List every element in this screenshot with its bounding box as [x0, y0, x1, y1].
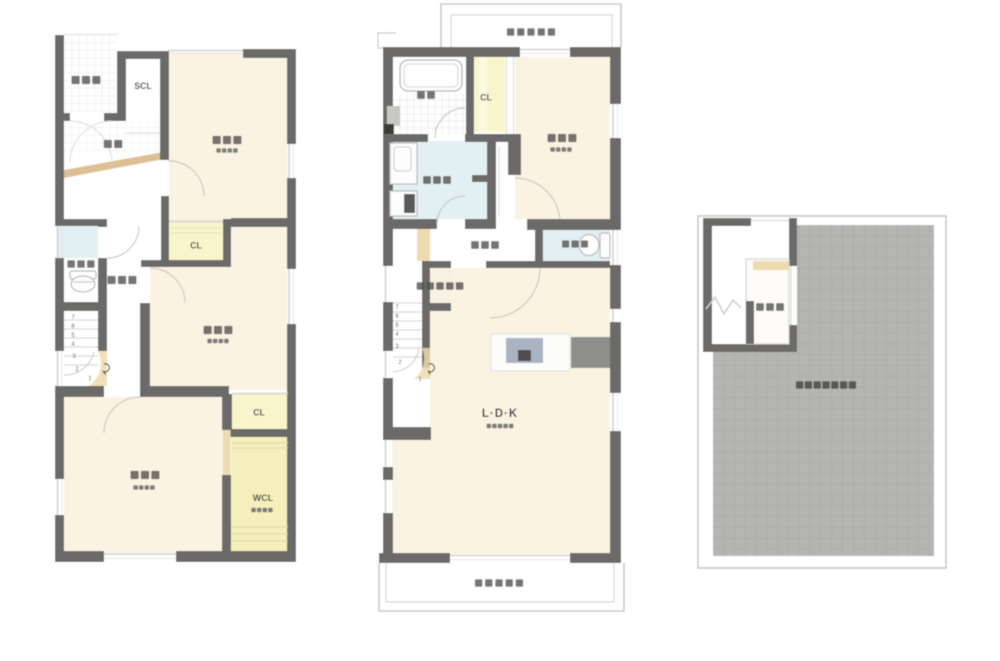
svg-text:L·D·K: L·D·K — [482, 408, 518, 420]
svg-text:CL: CL — [480, 93, 492, 103]
svg-text:WCL: WCL — [253, 493, 274, 503]
svg-text:CL: CL — [253, 408, 265, 418]
svg-text:CL: CL — [190, 241, 202, 251]
svg-text:SCL: SCL — [134, 81, 152, 91]
